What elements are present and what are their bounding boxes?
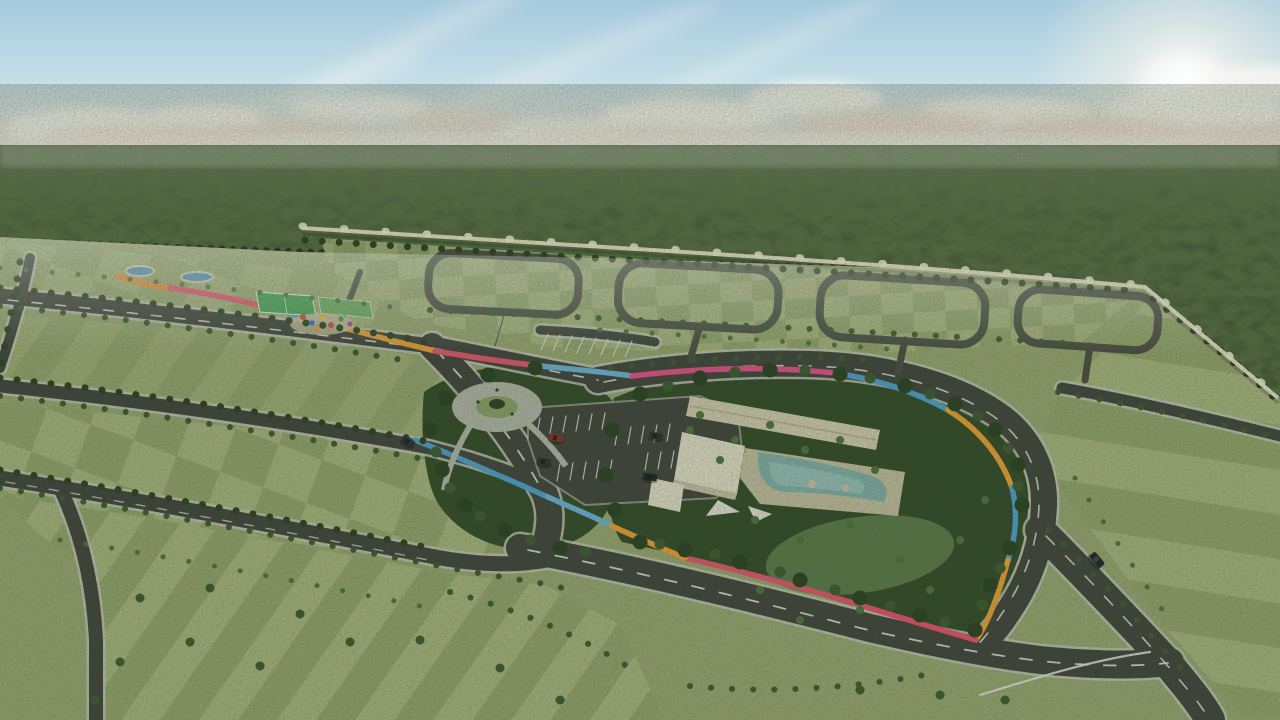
aerial-render xyxy=(0,0,1280,720)
grain-texture xyxy=(0,142,1280,720)
